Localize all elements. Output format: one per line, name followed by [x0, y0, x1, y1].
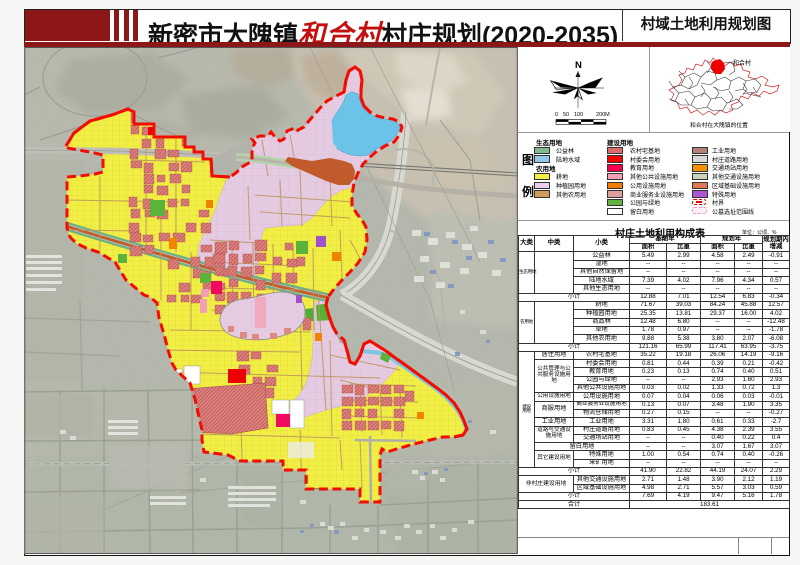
svg-text:50: 50 [563, 112, 569, 118]
svg-text:0: 0 [555, 112, 558, 118]
svg-text:和合村在大隗镇的位置: 和合村在大隗镇的位置 [690, 121, 748, 129]
svg-text:N: N [575, 60, 582, 71]
svg-text:200M: 200M [596, 112, 610, 118]
svg-text:100: 100 [574, 112, 583, 118]
svg-text:和合村: 和合村 [733, 59, 751, 67]
